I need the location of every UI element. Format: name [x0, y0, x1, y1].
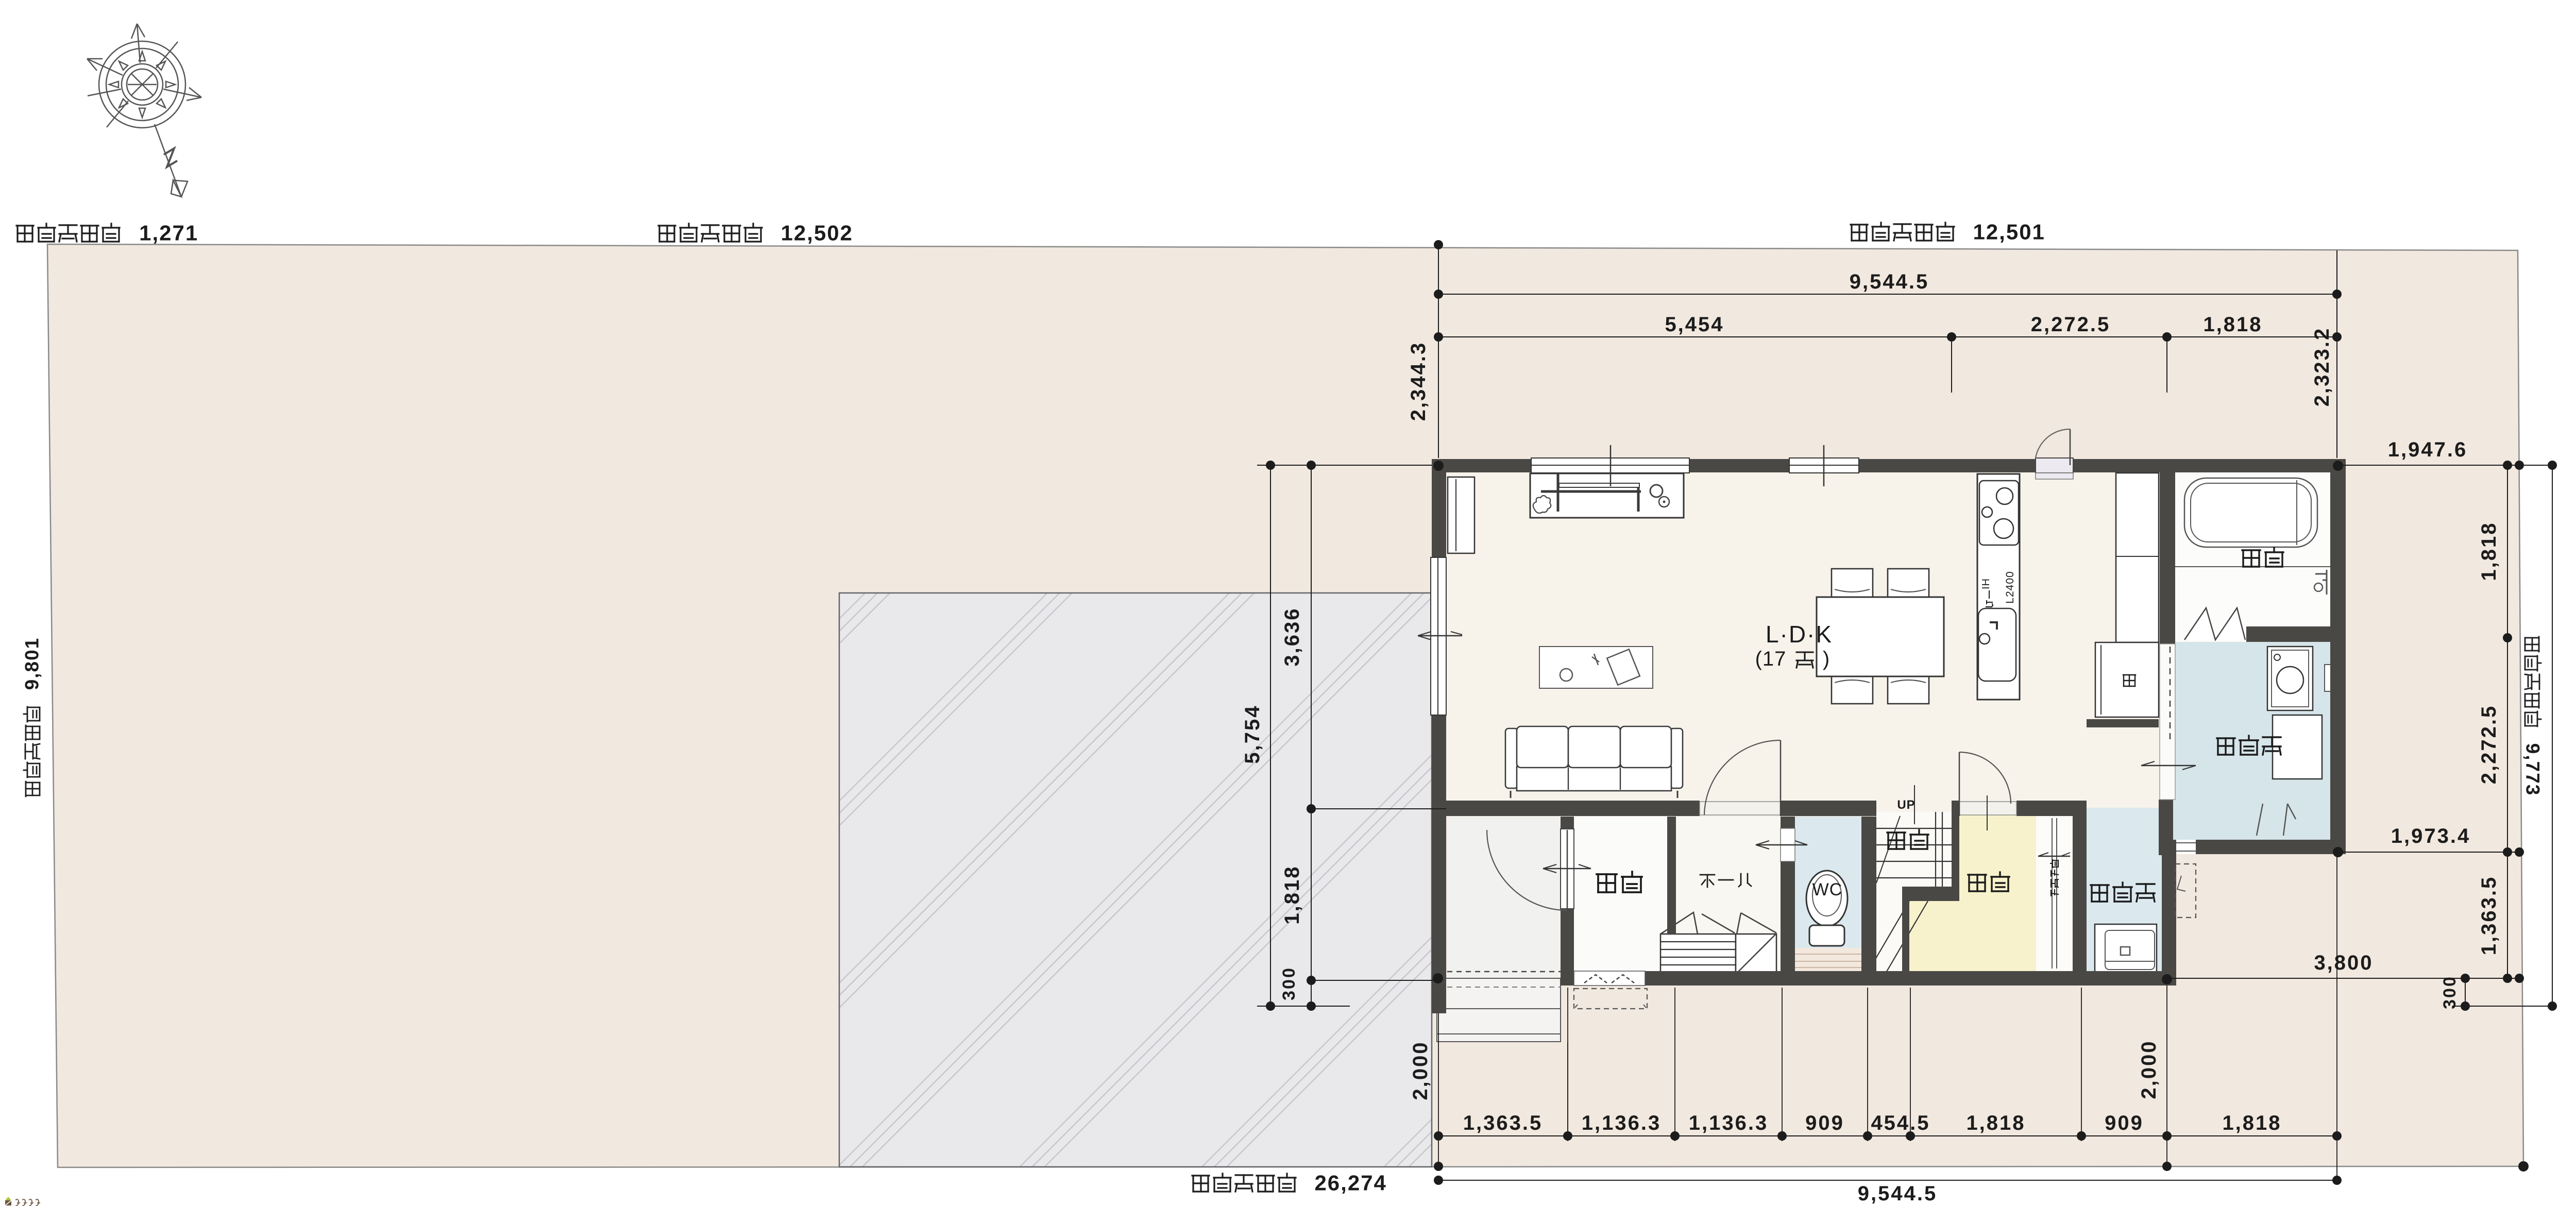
svg-text:909: 909	[1805, 1112, 1844, 1134]
svg-text:1,136.3: 1,136.3	[1689, 1112, 1768, 1134]
svg-text:9,801: 9,801	[22, 637, 43, 690]
svg-text:2,323.2: 2,323.2	[2311, 327, 2333, 406]
svg-text:454.5: 454.5	[1871, 1112, 1930, 1134]
svg-text:1,818: 1,818	[1966, 1112, 2025, 1134]
svg-text:2,000: 2,000	[1409, 1041, 1432, 1100]
svg-text:): )	[1823, 648, 1830, 670]
svg-text:3,636: 3,636	[1281, 607, 1303, 666]
svg-text:2,272.5: 2,272.5	[2478, 705, 2500, 784]
svg-text:1,818: 1,818	[2478, 521, 2500, 581]
svg-text:1,136.3: 1,136.3	[1582, 1112, 1661, 1134]
svg-text:300: 300	[2440, 975, 2460, 1009]
svg-text:9,544.5: 9,544.5	[1850, 270, 1929, 293]
svg-text:L2400: L2400	[2004, 571, 2016, 603]
svg-text:9,544.5: 9,544.5	[1858, 1182, 1937, 1205]
svg-text:3,800: 3,800	[2314, 952, 2373, 974]
svg-text:1,818: 1,818	[1281, 865, 1303, 924]
svg-text:26,274: 26,274	[1314, 1170, 1386, 1195]
svg-text:9,773: 9,773	[2522, 743, 2543, 796]
svg-text:12,502: 12,502	[781, 220, 853, 245]
svg-text:2,000: 2,000	[2138, 1040, 2160, 1099]
svg-text:12,501: 12,501	[1973, 219, 2045, 244]
svg-text:1,363.5: 1,363.5	[2478, 876, 2500, 955]
svg-text:1,818: 1,818	[2203, 313, 2262, 336]
svg-text:1,947.6: 1,947.6	[2388, 438, 2467, 461]
svg-text:5,454: 5,454	[1665, 313, 1724, 336]
svg-text:L·D·K: L·D·K	[1766, 621, 1833, 648]
svg-text:300: 300	[1279, 966, 1299, 1000]
svg-text:2,272.5: 2,272.5	[2031, 313, 2110, 336]
svg-text:2,344.3: 2,344.3	[1407, 342, 1430, 421]
svg-text:909: 909	[2105, 1112, 2144, 1134]
svg-text:UP: UP	[1897, 798, 1915, 812]
svg-text:1,818: 1,818	[2222, 1112, 2281, 1134]
svg-text:5,754: 5,754	[1241, 704, 1264, 763]
svg-text:WC: WC	[1812, 880, 1843, 899]
svg-text:IH: IH	[1980, 578, 1992, 589]
svg-text:1,363.5: 1,363.5	[1463, 1112, 1543, 1134]
svg-text:(17: (17	[1755, 648, 1787, 670]
svg-text:1,271: 1,271	[139, 220, 198, 245]
svg-text:1,973.4: 1,973.4	[2391, 825, 2470, 847]
